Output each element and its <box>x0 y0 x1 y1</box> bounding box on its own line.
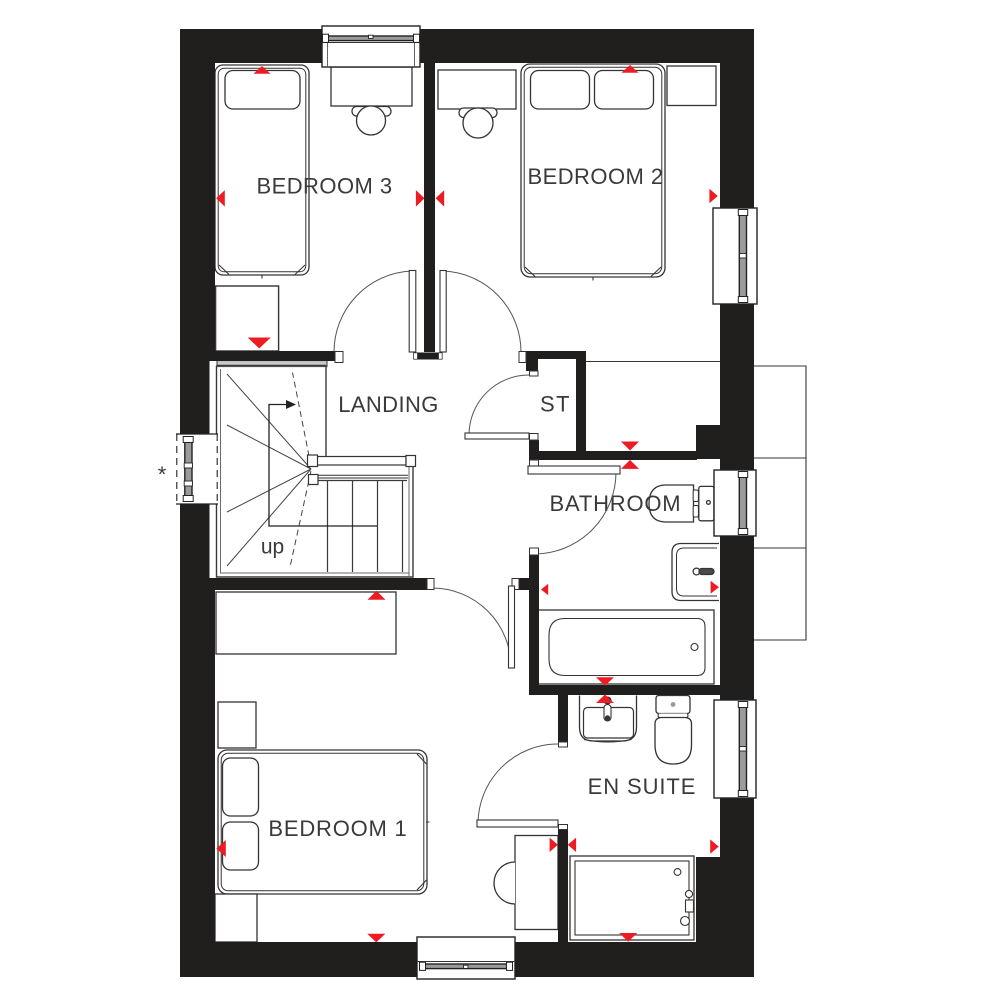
svg-text:BEDROOM 2: BEDROOM 2 <box>527 164 663 189</box>
svg-text:BEDROOM 3: BEDROOM 3 <box>256 174 392 199</box>
svg-text:ST: ST <box>540 392 571 417</box>
svg-text:*: * <box>158 462 167 487</box>
svg-text:LANDING: LANDING <box>338 392 439 417</box>
svg-text:BATHROOM: BATHROOM <box>550 491 682 516</box>
svg-text:up: up <box>261 536 284 559</box>
svg-text:EN SUITE: EN SUITE <box>588 774 697 799</box>
svg-text:BEDROOM 1: BEDROOM 1 <box>268 816 407 841</box>
